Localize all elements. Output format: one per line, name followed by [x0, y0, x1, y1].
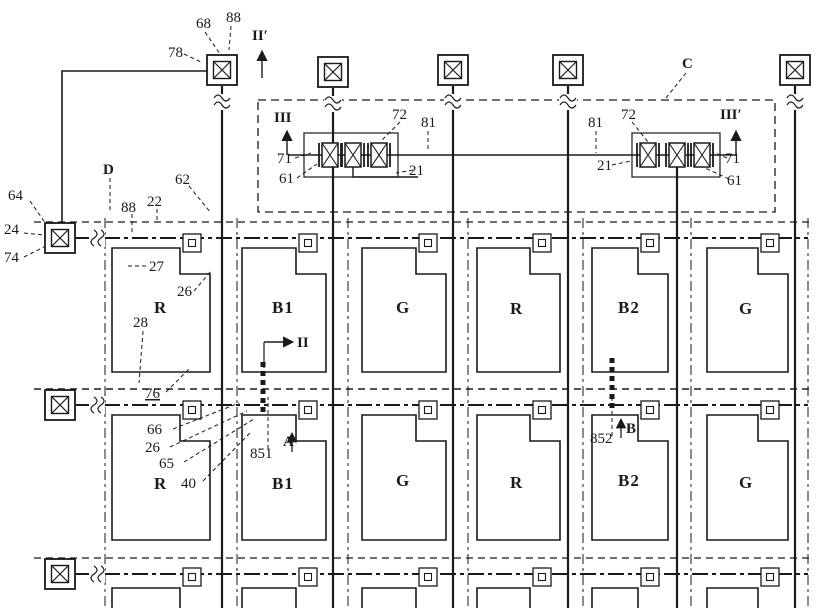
section-label: A — [283, 434, 294, 450]
ref-label: 74 — [4, 250, 20, 266]
section-label: II — [297, 335, 309, 351]
data-pad-icon — [780, 55, 810, 85]
subpixel-label: B2 — [618, 298, 640, 317]
ref-label: 88 — [226, 10, 241, 26]
subpixel-label: B1 — [272, 298, 294, 317]
subpixel-label: R — [510, 299, 523, 318]
ref-label: 71 — [725, 151, 740, 167]
ref-label: 61 — [727, 173, 742, 189]
ref-label: 851 — [250, 446, 273, 462]
subpixel-label: G — [739, 299, 753, 318]
data-pad-icon — [438, 55, 468, 85]
transistor-icon — [666, 143, 688, 167]
section-label: D — [103, 162, 114, 178]
pixel-electrode — [362, 588, 446, 608]
transistor-icon — [319, 143, 341, 167]
subpixel-label: G — [396, 298, 410, 317]
ref-label: 71 — [277, 151, 292, 167]
pixel-electrode — [242, 588, 326, 608]
data-pad-icon — [553, 55, 583, 85]
ref-label: 24 — [4, 222, 20, 238]
ref-label: 72 — [392, 107, 407, 123]
subpixel-label: G — [396, 471, 410, 490]
section-label: II′ — [252, 28, 268, 44]
transistor-icon — [368, 143, 390, 167]
ref-label: 81 — [588, 115, 603, 131]
transistor-icon — [637, 143, 659, 167]
gate-pad-icon — [45, 223, 75, 253]
transistor-icon — [342, 143, 364, 167]
pixel-electrode — [112, 588, 210, 608]
ref-label: 40 — [181, 476, 196, 492]
ref-label: 852 — [590, 431, 613, 447]
gate-pad-icon — [45, 390, 75, 420]
ref-label: 65 — [159, 456, 174, 472]
data-pad-icon — [318, 57, 348, 87]
ref-label: 26 — [145, 440, 161, 456]
subpixel-label: B2 — [618, 471, 640, 490]
ref-label: 61 — [279, 171, 294, 187]
subpixel-label: B1 — [272, 474, 294, 493]
ref-label: 28 — [133, 315, 148, 331]
section-label: III′ — [720, 107, 742, 123]
leader-lines — [24, 26, 729, 481]
ref-label: 22 — [147, 194, 162, 210]
pixel-electrode — [477, 588, 560, 608]
pixel-tfts — [183, 234, 779, 586]
subpixel-label: R — [510, 473, 523, 492]
ref-label: 21 — [597, 158, 612, 174]
ref-label: 26 — [177, 284, 193, 300]
bonding-pads — [45, 55, 810, 589]
pixel-electrode — [707, 588, 788, 608]
gate-pad-icon — [45, 559, 75, 589]
ref-label: 21 — [409, 163, 424, 179]
region-label-c: C — [682, 56, 693, 72]
ref-label: 66 — [147, 422, 163, 438]
pixel-cells — [112, 248, 788, 608]
lcd-array-diagram: 68 88 II′ 78 C III 72 81 71 61 21 81 72 … — [0, 0, 827, 608]
ref-label: 64 — [8, 188, 24, 204]
ref-label: 88 — [121, 200, 136, 216]
subpixel-label: R — [154, 474, 167, 493]
ref-label: 81 — [421, 115, 436, 131]
ref-label: 72 — [621, 107, 636, 123]
section-label: B — [626, 421, 636, 437]
subpixel-label: R — [154, 298, 167, 317]
subpixel-label: G — [739, 473, 753, 492]
data-pad-icon — [207, 55, 237, 85]
ref-label: 78 — [168, 45, 183, 61]
ref-label: 62 — [175, 172, 190, 188]
ref-label: 68 — [196, 16, 211, 32]
pixel-electrode — [592, 588, 668, 608]
section-label: III — [274, 110, 292, 126]
transistor-icon — [691, 143, 713, 167]
patent-figure: 68 88 II′ 78 C III 72 81 71 61 21 81 72 … — [0, 0, 827, 608]
ref-label: 27 — [149, 259, 165, 275]
ref-label: 76 — [145, 386, 161, 402]
